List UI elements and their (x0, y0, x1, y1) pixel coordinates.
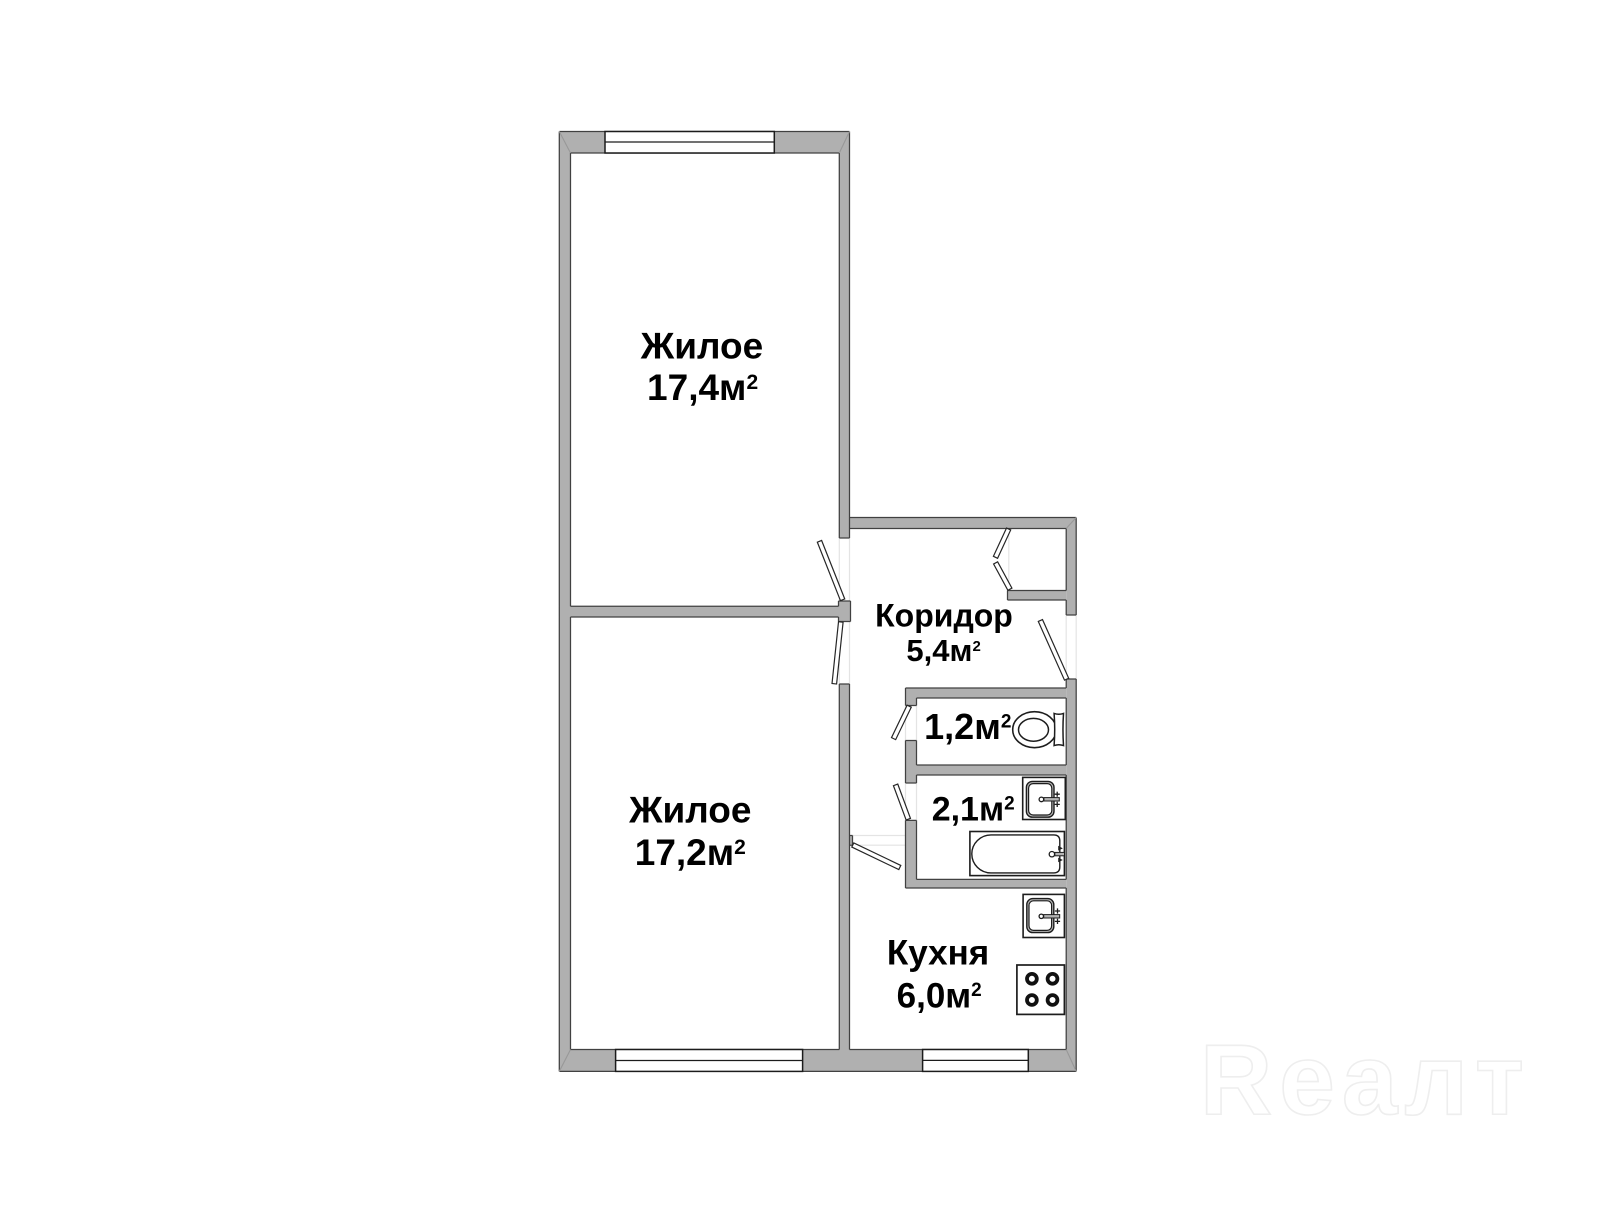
svg-text:5,4м2: 5,4м2 (906, 633, 980, 668)
svg-text:Reaлт: Reaлт (1200, 1024, 1531, 1136)
svg-text:Кухня: Кухня (887, 934, 989, 973)
svg-text:2,1м2: 2,1м2 (932, 790, 1015, 828)
svg-text:Коридор: Коридор (875, 598, 1013, 634)
svg-text:Жилое: Жилое (628, 790, 751, 831)
svg-text:6,0м2: 6,0м2 (897, 976, 982, 1015)
svg-text:17,4м2: 17,4м2 (647, 367, 758, 408)
svg-text:1,2м2: 1,2м2 (924, 706, 1011, 747)
svg-text:17,2м2: 17,2м2 (635, 832, 746, 873)
svg-text:Жилое: Жилое (640, 326, 763, 367)
